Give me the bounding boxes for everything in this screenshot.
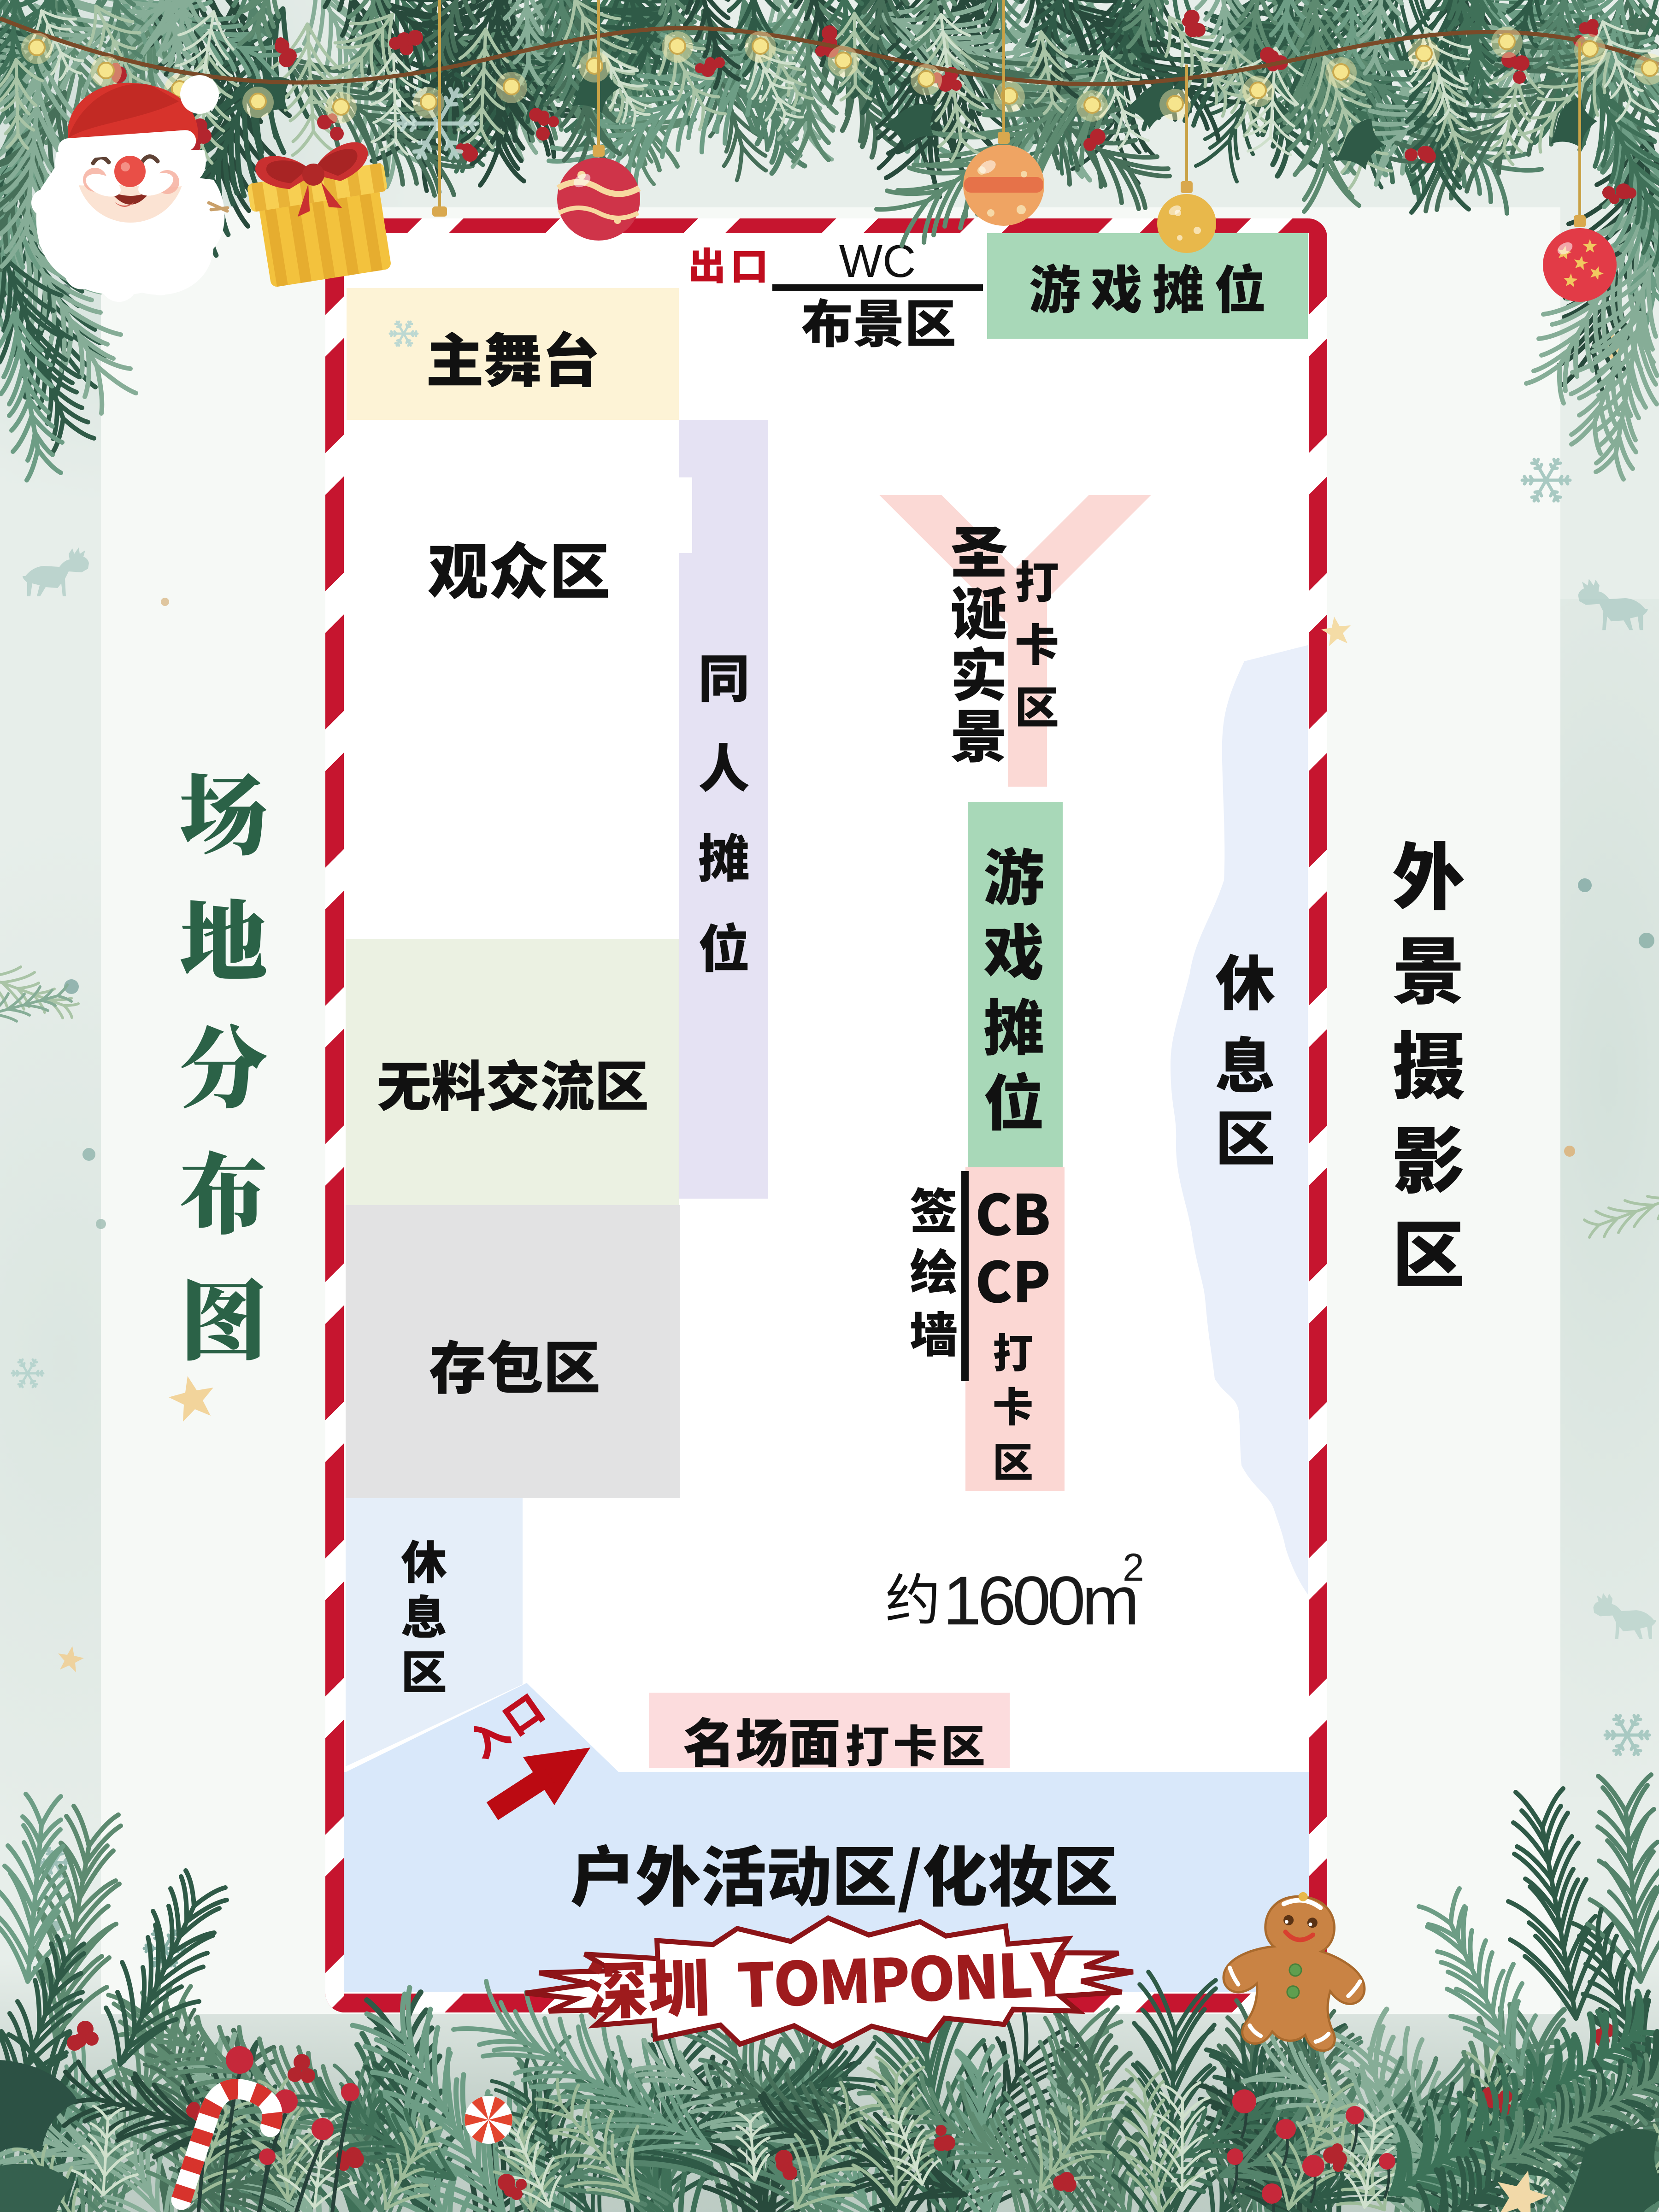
svg-text:2: 2 bbox=[1123, 1546, 1144, 1589]
svg-text:1600m: 1600m bbox=[943, 1562, 1136, 1639]
